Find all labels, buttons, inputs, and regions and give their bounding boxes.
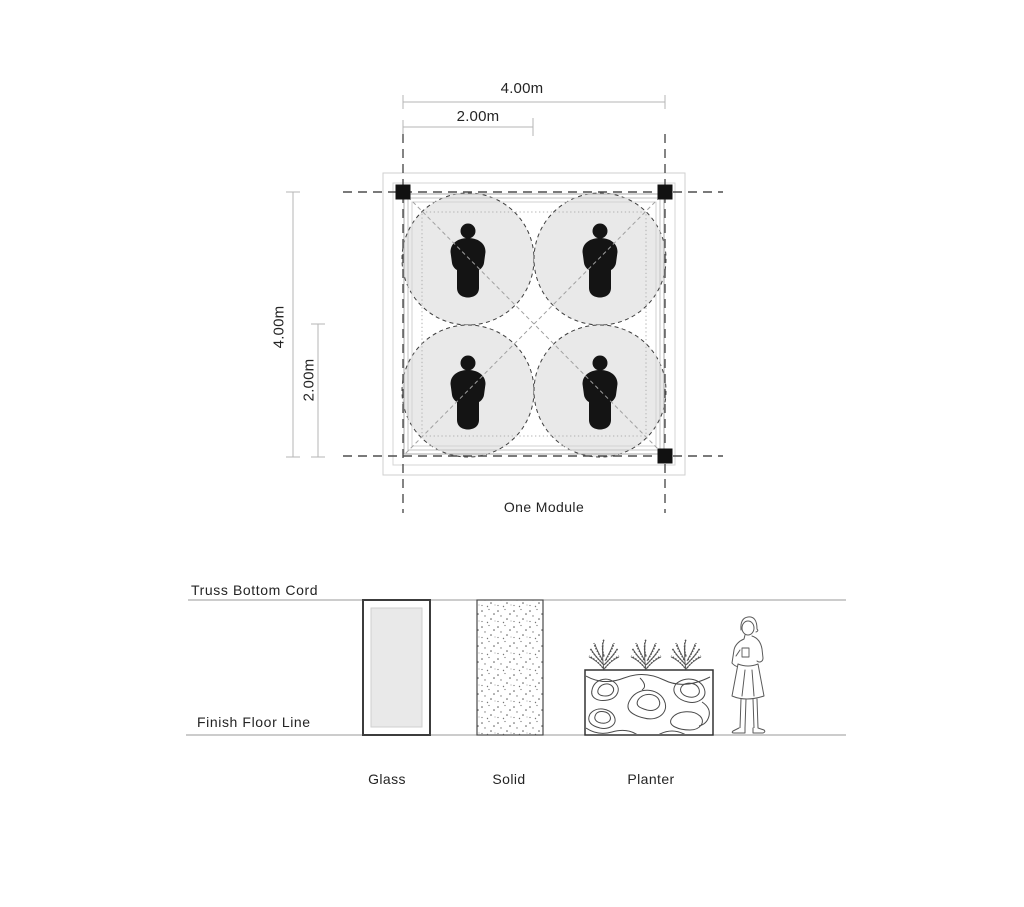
scale-figure-person — [732, 617, 765, 733]
module-title: One Module — [504, 499, 584, 515]
shrub-icon — [671, 639, 701, 671]
column — [396, 185, 411, 200]
planter — [585, 639, 713, 737]
module-plan — [286, 95, 723, 513]
truss-bottom-cord-label: Truss Bottom Cord — [191, 582, 318, 598]
column — [658, 185, 673, 200]
plan-height-half-dimension: 2.00m — [301, 359, 318, 402]
shrub-icon — [631, 639, 661, 671]
glass-panel — [363, 600, 430, 735]
planter-label: Planter — [627, 771, 674, 787]
solid-label: Solid — [492, 771, 525, 787]
shrub-icon — [589, 639, 619, 671]
column — [658, 449, 673, 464]
plan-width-total-dimension: 4.00m — [501, 80, 544, 97]
plan-width-half-dimension: 2.00m — [457, 108, 500, 125]
plan-height-total-dimension: 4.00m — [271, 306, 288, 349]
architectural-sheet: 4.00m 2.00m 4.00m 2.00m One Module Truss… — [0, 0, 1024, 907]
finish-floor-line-label: Finish Floor Line — [197, 714, 311, 730]
solid-panel — [477, 600, 543, 735]
glass-label: Glass — [368, 771, 406, 787]
